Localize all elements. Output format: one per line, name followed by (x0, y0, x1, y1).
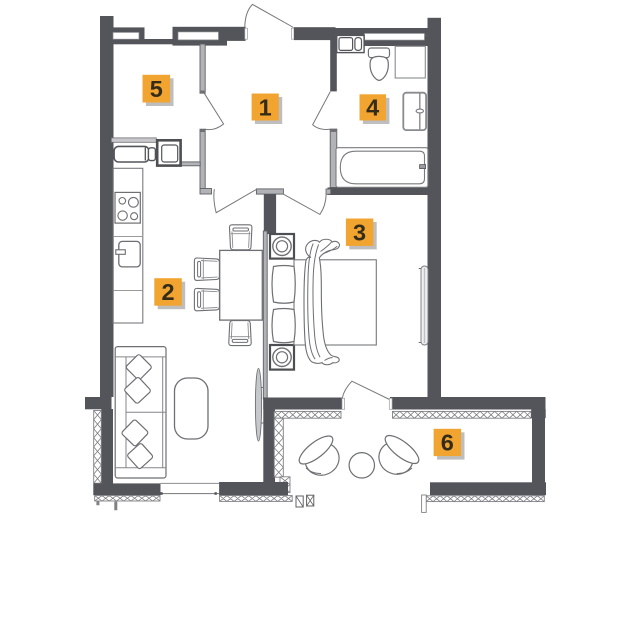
svg-text:3: 3 (353, 220, 366, 246)
svg-text:6: 6 (441, 430, 454, 456)
svg-text:4: 4 (366, 95, 379, 121)
svg-text:2: 2 (161, 279, 174, 305)
svg-text:5: 5 (150, 76, 163, 102)
svg-text:1: 1 (259, 94, 272, 120)
